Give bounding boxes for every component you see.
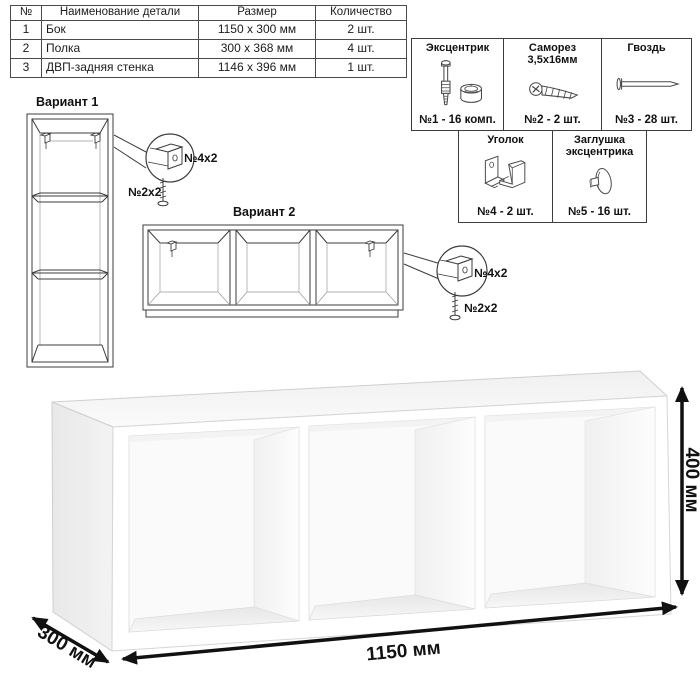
- variant1-callout: №4х2 №2х2: [114, 134, 218, 206]
- variant1-label: Вариант 1: [36, 95, 98, 109]
- height-dimension-label: 400 мм: [681, 447, 700, 512]
- assembly-instruction-sheet: № Наименование детали Размер Количество …: [0, 0, 700, 690]
- variant2-drawing: Вариант 2: [143, 205, 403, 317]
- variant2-screw-label: №2х2: [464, 301, 498, 315]
- shelf-compartment: [309, 417, 475, 620]
- variant1-bracket-label: №4х2: [184, 151, 218, 165]
- drawings-overlay: Вариант 1 №4х2 №2х2 Вариант 2: [0, 0, 700, 690]
- variant2-label: Вариант 2: [233, 205, 295, 219]
- variant1-drawing: Вариант 1: [27, 95, 113, 367]
- width-dimension-label: 1150 мм: [365, 638, 441, 666]
- variant1-screw-label: №2х2: [128, 185, 162, 199]
- shelf-compartment: [485, 407, 655, 608]
- shelf-compartment: [129, 427, 299, 632]
- variant2-bracket-label: №4х2: [474, 266, 508, 280]
- shelf-3d-view: [52, 371, 671, 651]
- variant2-callout: №4х2 №2х2: [404, 246, 508, 320]
